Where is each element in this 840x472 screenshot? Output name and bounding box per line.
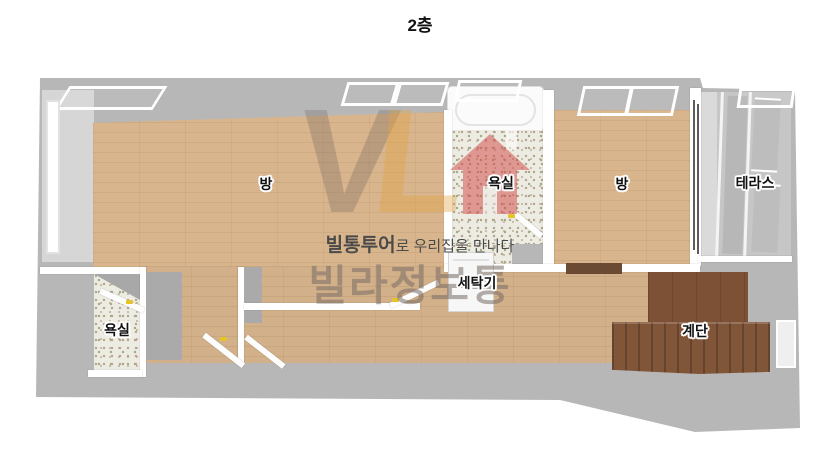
wall-bath-bottom-top <box>40 267 146 274</box>
roof-window-icon <box>393 82 450 106</box>
roof-window-icon <box>625 86 679 116</box>
floor-title: 2층 <box>0 11 840 36</box>
sliding-door-frame-icon <box>693 100 695 250</box>
wall-room-terrace <box>690 88 701 266</box>
room-label-terrace: 테라스 <box>736 173 775 193</box>
terrace-glass-panel <box>751 97 781 172</box>
room-right-doorway <box>566 263 622 274</box>
terrace-edge <box>701 92 717 258</box>
stairs-landing <box>648 272 748 324</box>
room-label-washer: 세탁기 <box>458 273 497 293</box>
wall-hall-vertical-face <box>244 267 262 323</box>
wall-terrace-bottom <box>698 256 792 262</box>
roof-window-icon <box>341 82 400 106</box>
wall-bath-top-left <box>444 110 452 267</box>
door-handle-icon <box>508 214 515 218</box>
room-label-stairs: 계단 <box>682 321 708 341</box>
room-label-right: 방 <box>616 174 629 194</box>
room-label-bath-top: 욕실 <box>488 173 514 193</box>
washing-machine-lid <box>453 259 489 261</box>
door-handle-icon <box>126 300 133 304</box>
roof-window-icon <box>737 88 796 108</box>
sliding-door-frame-icon <box>697 104 699 254</box>
door-handle-icon <box>392 298 399 302</box>
roof-window-icon <box>454 80 523 102</box>
wall-bath-bottom-face <box>146 272 182 360</box>
roof-window-icon <box>55 86 168 110</box>
floorplan-canvas: 2층 <box>0 0 840 472</box>
wall-bath-bottom-bottom <box>88 370 142 377</box>
door-handle-icon <box>220 337 227 341</box>
room-label-bath-bottom: 욕실 <box>104 320 130 340</box>
left-wall-window-icon <box>46 100 60 254</box>
right-wall-window-icon <box>776 320 796 368</box>
terrace-glass-panel <box>751 183 781 252</box>
room-label-left: 방 <box>260 174 273 194</box>
wall-bath-top-right <box>543 90 554 267</box>
